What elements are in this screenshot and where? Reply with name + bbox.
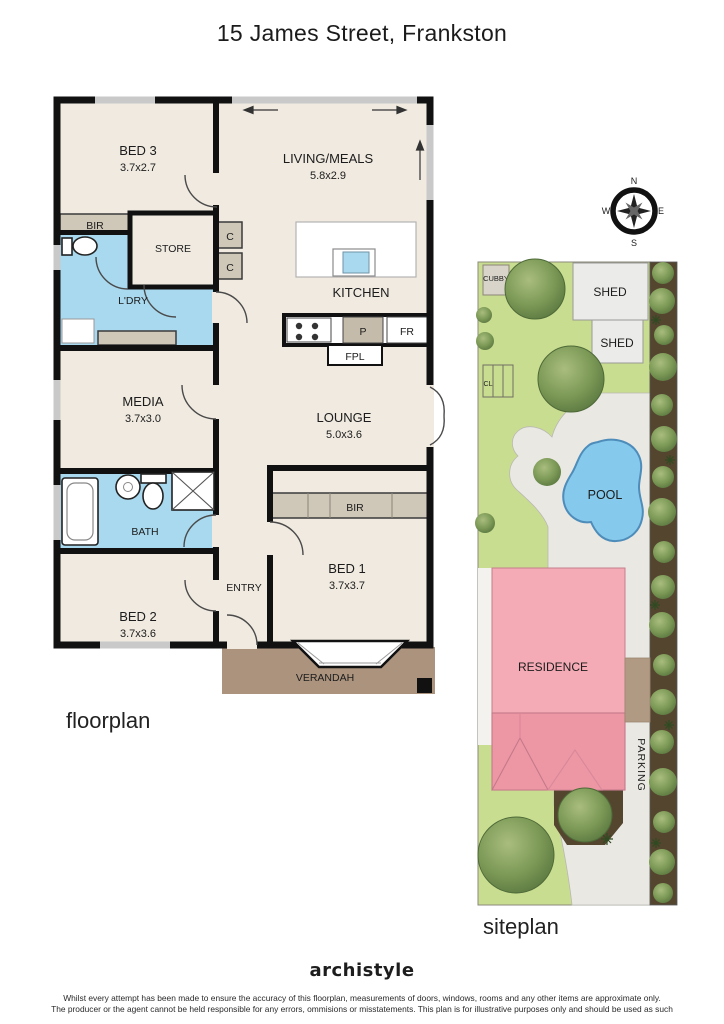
room-bir-bed1: BIR bbox=[270, 493, 430, 518]
compass-e: E bbox=[658, 206, 664, 216]
cubby-label: CUBBY bbox=[483, 274, 509, 283]
shed1-label: SHED bbox=[593, 285, 627, 299]
pantry: P bbox=[343, 317, 383, 343]
living-label: LIVING/MEALS bbox=[283, 151, 374, 166]
shed-2: SHED bbox=[592, 320, 643, 363]
laundry-bench bbox=[98, 331, 176, 345]
window bbox=[54, 380, 61, 420]
window bbox=[54, 245, 61, 270]
lounge-label: LOUNGE bbox=[317, 410, 372, 425]
bed2-dims: 3.7x3.6 bbox=[120, 628, 156, 640]
archistyle-logo: archistyle bbox=[0, 960, 724, 981]
media-label: MEDIA bbox=[122, 394, 164, 409]
compass-w: W bbox=[602, 206, 611, 216]
disclaimer-line-1: Whilst every attempt has been made to en… bbox=[0, 993, 724, 1004]
fireplace-label: FPL bbox=[345, 351, 364, 363]
ldry-label: L'DRY bbox=[118, 295, 148, 307]
shower-icon bbox=[172, 472, 214, 510]
floorplan-caption: floorplan bbox=[66, 708, 150, 734]
house-floor bbox=[57, 100, 430, 645]
tree bbox=[649, 288, 675, 314]
tree bbox=[654, 325, 674, 345]
footer-disclaimer: Whilst every attempt has been made to en… bbox=[0, 993, 724, 1015]
media-dims: 3.7x3.0 bbox=[125, 413, 161, 425]
tree bbox=[476, 332, 494, 350]
compass-s: S bbox=[631, 238, 637, 248]
floorplan: VERANDAH BIR C C bbox=[40, 85, 450, 735]
bed3-dims: 3.7x2.7 bbox=[120, 162, 156, 174]
tree bbox=[652, 262, 674, 284]
cupboard1-label: C bbox=[226, 231, 234, 243]
tree bbox=[653, 654, 675, 676]
tree bbox=[653, 541, 675, 563]
stove-icon bbox=[287, 318, 331, 342]
bed1-label: BED 1 bbox=[328, 561, 366, 576]
bathtub-icon bbox=[62, 478, 98, 545]
bed2-label: BED 2 bbox=[119, 609, 157, 624]
residence: RESIDENCE bbox=[492, 568, 625, 790]
tree bbox=[649, 353, 677, 381]
lounge-dims: 5.0x3.6 bbox=[326, 429, 362, 441]
bath-label: BATH bbox=[131, 526, 158, 538]
window bbox=[232, 97, 417, 104]
bir-bed1-label: BIR bbox=[346, 502, 364, 514]
store-label: STORE bbox=[155, 243, 191, 255]
kitchen-bench: P FR bbox=[284, 315, 430, 345]
tree bbox=[476, 307, 492, 323]
window bbox=[95, 97, 155, 104]
tree bbox=[649, 612, 675, 638]
wc-toilet-icon bbox=[62, 237, 97, 255]
cl-label: CL bbox=[484, 381, 493, 388]
cupboard2-label: C bbox=[226, 262, 234, 274]
tree bbox=[651, 575, 675, 599]
disclaimer-line-2: The producer or the agent cannot be held… bbox=[0, 1004, 724, 1015]
fireplace: FPL bbox=[328, 345, 382, 365]
window bbox=[427, 125, 434, 200]
bed3-label: BED 3 bbox=[119, 143, 157, 158]
tree bbox=[558, 788, 612, 842]
shed-1: SHED bbox=[573, 263, 648, 320]
tree bbox=[505, 259, 565, 319]
tree bbox=[538, 346, 604, 412]
fridge: FR bbox=[387, 317, 427, 343]
basin-icon bbox=[116, 475, 140, 499]
laundry-trough bbox=[62, 319, 94, 343]
tree bbox=[653, 883, 673, 903]
cupboard-1: C bbox=[218, 222, 242, 248]
kitchen-island bbox=[296, 222, 416, 277]
parking-label: PARKING bbox=[635, 738, 647, 791]
pool-label: POOL bbox=[588, 488, 623, 502]
tree bbox=[649, 768, 677, 796]
siteplan-caption: siteplan bbox=[483, 914, 559, 940]
tree bbox=[649, 849, 675, 875]
tree bbox=[533, 458, 561, 486]
entry-label: ENTRY bbox=[226, 582, 261, 594]
siteplan: N E S W bbox=[455, 165, 695, 910]
window bbox=[100, 642, 170, 649]
verandah-post bbox=[417, 678, 432, 693]
shed2-label: SHED bbox=[600, 336, 634, 350]
kitchen-label: KITCHEN bbox=[332, 285, 389, 300]
window bbox=[54, 485, 61, 540]
living-dims: 5.8x2.9 bbox=[310, 170, 346, 182]
tree bbox=[653, 811, 675, 833]
compass-n: N bbox=[631, 176, 638, 186]
deck bbox=[625, 658, 650, 722]
side-path bbox=[478, 568, 492, 745]
page-title: 15 James Street, Frankston bbox=[0, 20, 724, 47]
pantry-label: P bbox=[359, 326, 366, 338]
residence-label: RESIDENCE bbox=[518, 660, 588, 674]
tree bbox=[652, 466, 674, 488]
verandah-label: VERANDAH bbox=[296, 672, 354, 684]
tree bbox=[478, 817, 554, 893]
bed1-dims: 3.7x3.7 bbox=[329, 580, 365, 592]
tree bbox=[651, 426, 677, 452]
garden-strip bbox=[648, 262, 677, 905]
tree bbox=[650, 689, 676, 715]
cupboard-2: C bbox=[218, 253, 242, 279]
tree bbox=[475, 513, 495, 533]
fridge-label: FR bbox=[400, 326, 414, 338]
tree bbox=[650, 730, 674, 754]
tree bbox=[651, 394, 673, 416]
tree bbox=[648, 498, 676, 526]
page: 15 James Street, Frankston VERANDAH BIR bbox=[0, 0, 724, 1024]
compass-icon: N E S W bbox=[602, 176, 664, 248]
room-store: STORE bbox=[130, 213, 216, 287]
